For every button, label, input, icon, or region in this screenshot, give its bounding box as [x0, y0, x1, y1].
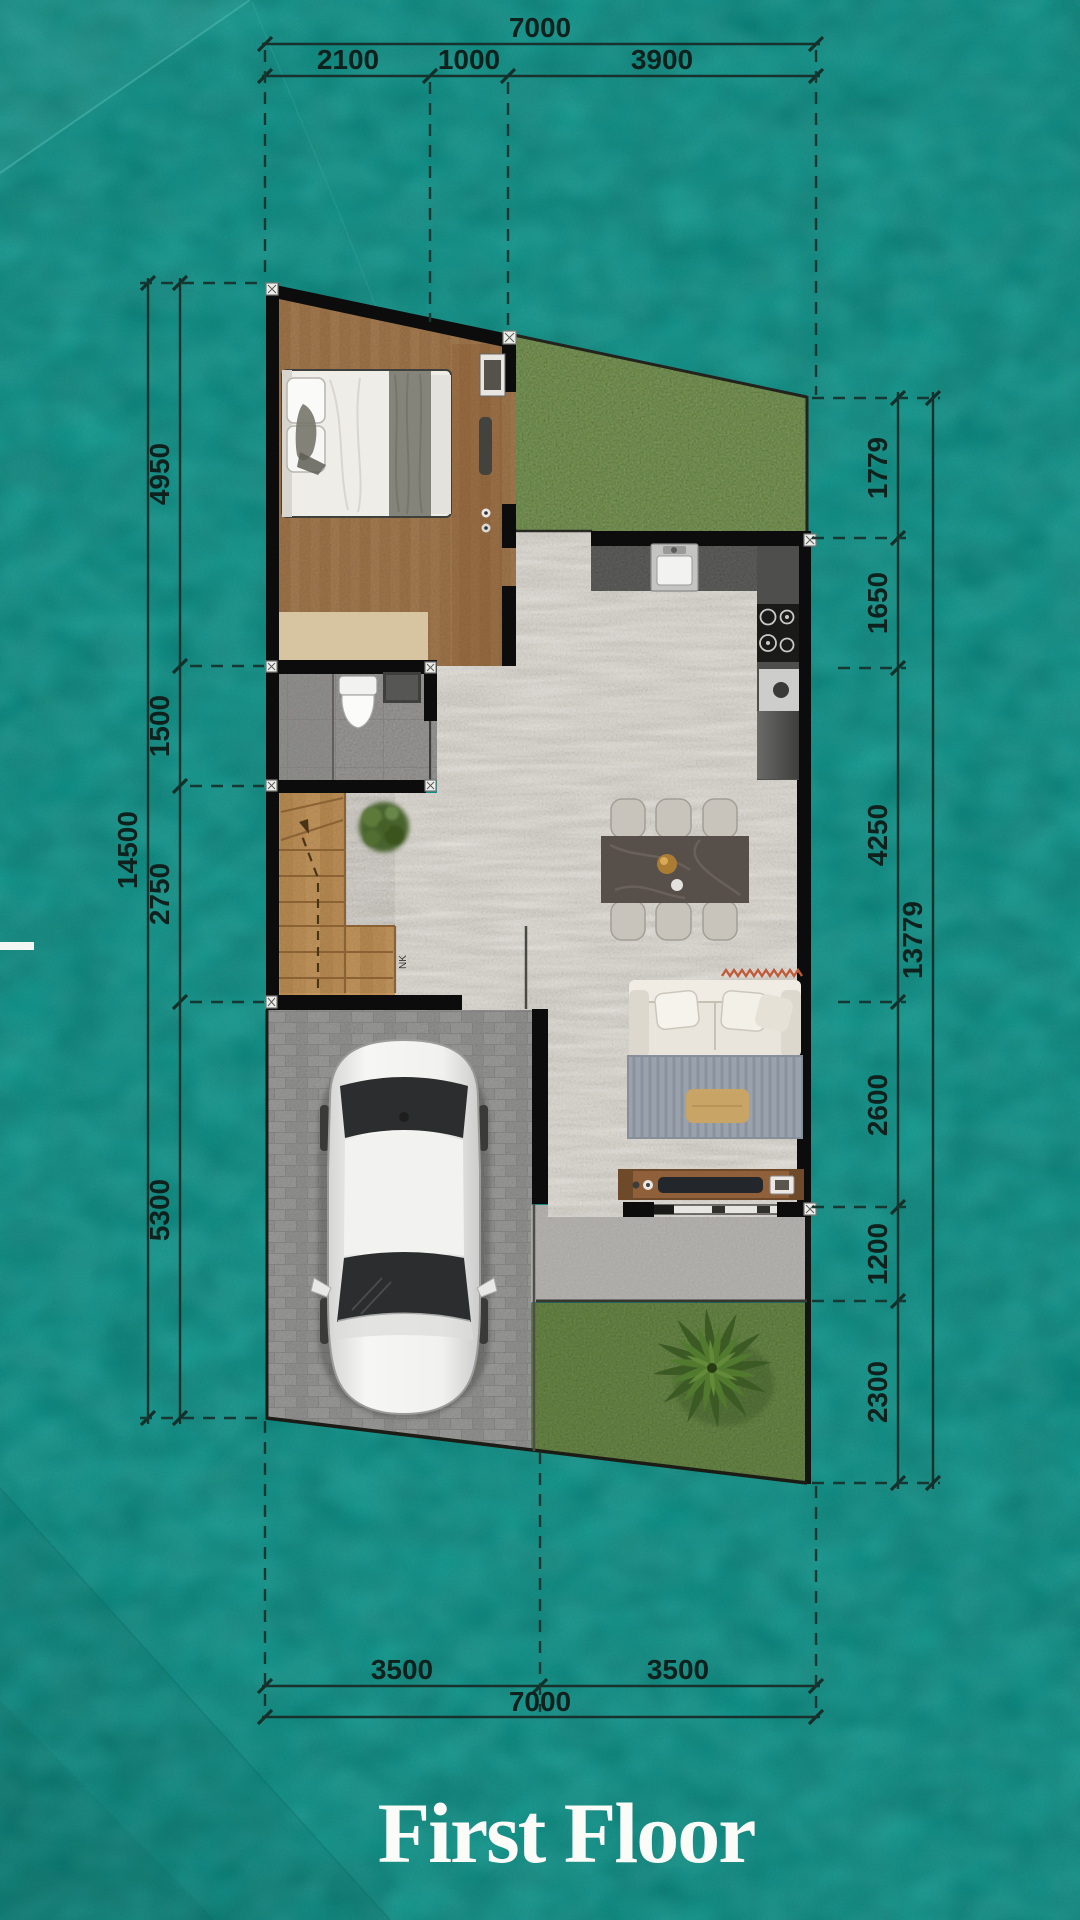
svg-text:7000: 7000	[509, 12, 571, 43]
svg-text:7000: 7000	[509, 1686, 571, 1717]
svg-text:1000: 1000	[438, 44, 500, 75]
svg-text:3500: 3500	[647, 1654, 709, 1685]
svg-text:1779: 1779	[862, 437, 893, 499]
svg-text:2300: 2300	[862, 1361, 893, 1423]
svg-text:First Floor: First Floor	[378, 1785, 756, 1881]
svg-text:1200: 1200	[862, 1223, 893, 1285]
svg-text:14500: 14500	[112, 811, 143, 889]
svg-text:2100: 2100	[317, 44, 379, 75]
svg-text:3900: 3900	[631, 44, 693, 75]
svg-text:1650: 1650	[862, 572, 893, 634]
svg-text:4950: 4950	[144, 443, 175, 505]
svg-text:4250: 4250	[862, 804, 893, 866]
svg-text:2750: 2750	[144, 863, 175, 925]
svg-text:5300: 5300	[144, 1179, 175, 1241]
svg-text:3500: 3500	[371, 1654, 433, 1685]
svg-text:NK: NK	[398, 955, 409, 969]
svg-text:2600: 2600	[862, 1074, 893, 1136]
svg-text:13779: 13779	[897, 901, 928, 979]
svg-text:1500: 1500	[144, 695, 175, 757]
